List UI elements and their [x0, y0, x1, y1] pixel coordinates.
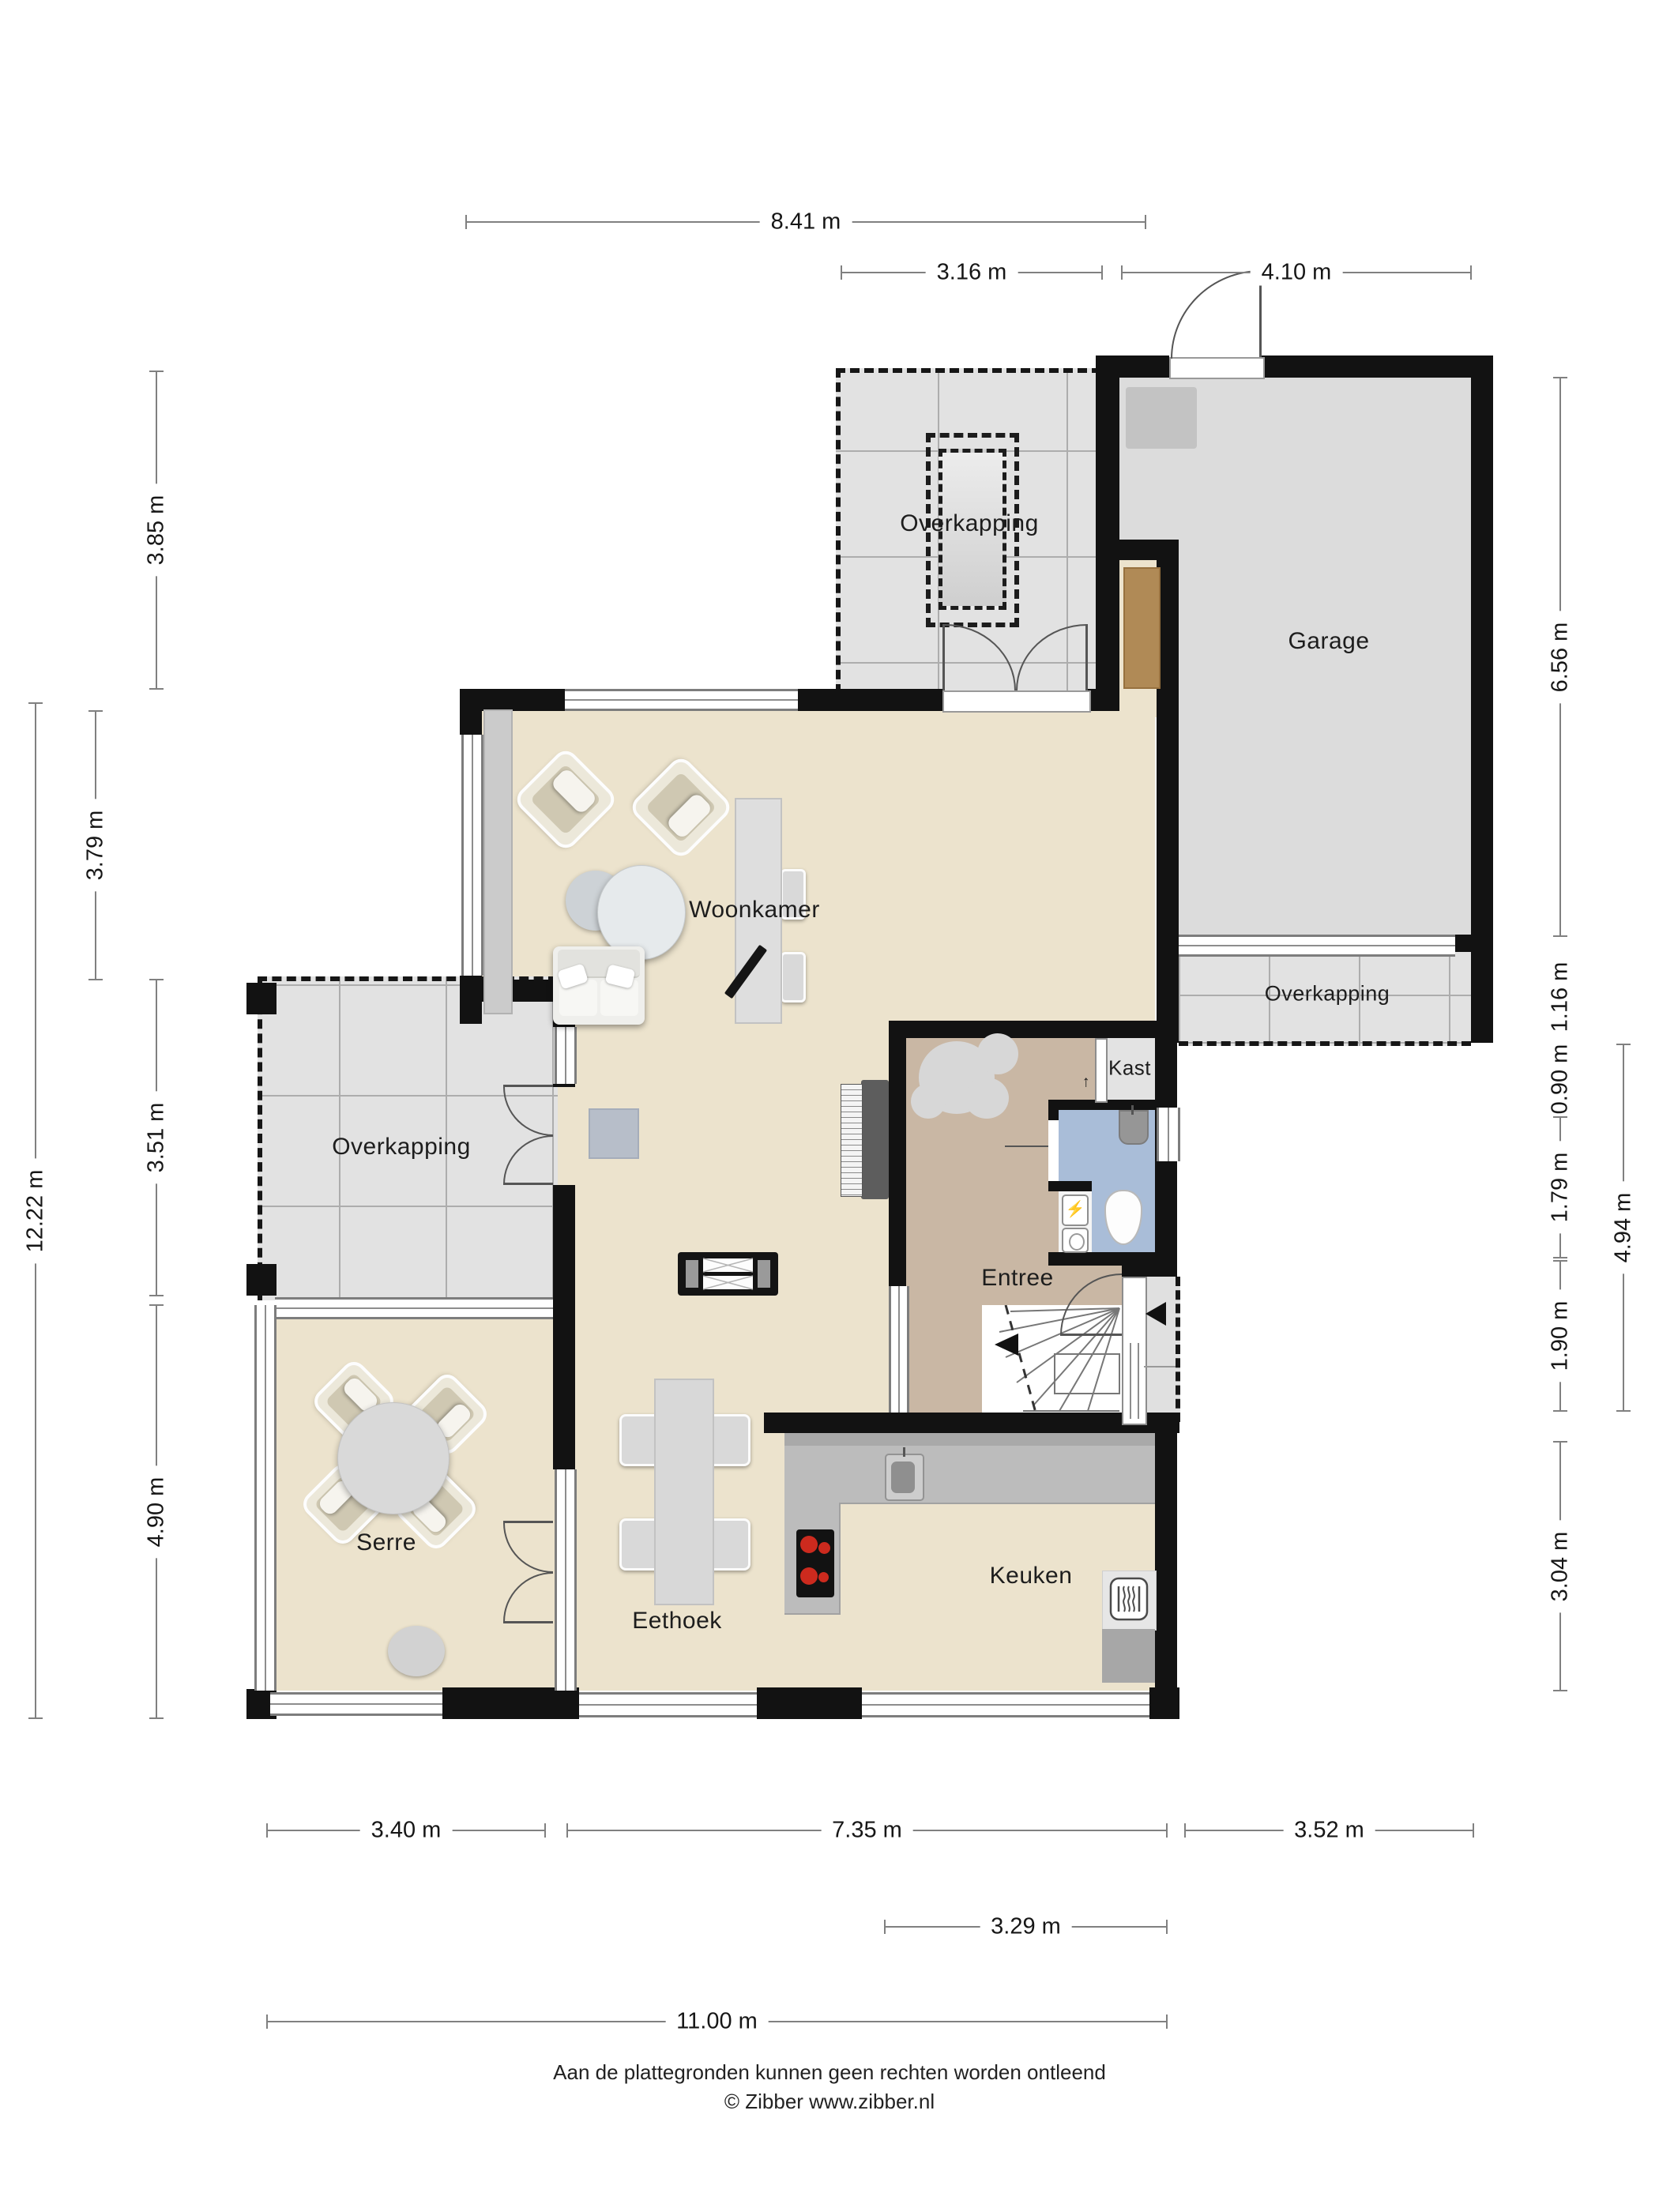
desk-chair-2 — [781, 952, 806, 1003]
oven-icon — [1109, 1577, 1149, 1621]
garage-mat — [1126, 387, 1197, 449]
dining-chair-4 — [711, 1518, 750, 1571]
window-serre-west — [254, 1305, 276, 1691]
cloud-rug — [905, 1027, 1023, 1122]
wall-toilet-west-jog — [1048, 1181, 1092, 1191]
wall-top-east — [1088, 689, 1119, 711]
porch-divider-line — [1144, 1366, 1176, 1367]
kitchen-counter-upper-strip — [784, 1433, 1155, 1446]
post-overkapping-left-nw — [246, 983, 276, 1014]
dim-right-toilet: 1.79 m — [1559, 1117, 1561, 1258]
wall-garage-east — [1471, 355, 1493, 1043]
toilet-sink — [1119, 1110, 1149, 1145]
dim-right-kast: 0.90 m — [1559, 1044, 1561, 1114]
front-door-sidelight — [1130, 1343, 1139, 1419]
entrance-arrow-icon — [1145, 1302, 1166, 1326]
dim-right-keuken: 3.04 m — [1559, 1442, 1561, 1691]
wall-keuken-north — [764, 1413, 1179, 1433]
piano-keys — [841, 1084, 863, 1197]
dim-left-woonkamer: 3.79 m — [95, 711, 96, 980]
wall-keuken-east — [1155, 1422, 1177, 1718]
room-label-garage: Garage — [1288, 628, 1369, 655]
wall-overkapping-left-east-lower — [553, 1185, 575, 1302]
kitchen-sink — [885, 1454, 924, 1501]
window-toilet-east — [1157, 1108, 1180, 1161]
wall-west-upper — [460, 689, 482, 735]
dining-chair-3 — [711, 1414, 750, 1466]
dim-left-overkapping: 3.51 m — [156, 980, 157, 1296]
dim-top-garage: 4.10 m — [1122, 272, 1471, 273]
cooktop — [796, 1529, 834, 1597]
dim-left-overkapping-top: 3.85 m — [156, 371, 157, 689]
room-label-serre: Serre — [356, 1529, 416, 1556]
window-serre-east — [555, 1469, 577, 1691]
dim-bottom-main: 7.35 m — [567, 1830, 1167, 1831]
room-label-keuken: Keuken — [990, 1563, 1073, 1589]
window-serre-top — [275, 1297, 553, 1319]
piano-body — [861, 1080, 889, 1199]
serre-table — [337, 1402, 450, 1514]
meter-box: ⚡ — [1062, 1194, 1089, 1226]
dim-bottom-serre: 3.40 m — [267, 1830, 545, 1831]
garage-floor-lower — [1179, 540, 1471, 936]
room-label-overkapping-top: Overkapping — [900, 510, 1039, 537]
cooktop-burner-4 — [818, 1572, 829, 1582]
room-label-eethoek: Eethoek — [632, 1608, 722, 1635]
wall-garage-bottom-east — [1455, 935, 1471, 952]
fireplace — [678, 1252, 778, 1296]
window-woonkamer-west — [461, 735, 483, 976]
cloud-rug-blob-2 — [977, 1033, 1018, 1074]
garage-door-arc — [1171, 270, 1261, 359]
dim-right-entree-total: 4.94 m — [1623, 1044, 1624, 1411]
room-label-overkapping-left: Overkapping — [332, 1134, 471, 1161]
room-label-kast: Kast — [1108, 1056, 1151, 1081]
footer-disclaimer: Aan de plattegronden kunnen geen rechten… — [0, 2060, 1659, 2085]
dim-bottom-right: 3.52 m — [1185, 1830, 1473, 1831]
entrance-porch — [1144, 1277, 1180, 1422]
kast-door — [1095, 1038, 1108, 1103]
dining-chair-1 — [619, 1414, 659, 1466]
serre-pouf — [388, 1626, 445, 1676]
toilet-door-leaf — [1005, 1145, 1048, 1147]
window-overkapping-left-east — [555, 1027, 577, 1084]
post-overkapping-left-sw — [246, 1264, 276, 1296]
fontein-basin-bowl — [1069, 1233, 1085, 1251]
window-garage-bottom — [1179, 935, 1455, 957]
wall-west-corner — [460, 976, 482, 1024]
window-woonkamer-top — [565, 689, 798, 711]
kast-door-arrow-icon: ↑ — [1082, 1074, 1091, 1092]
wall-overkapping-left-east-mid — [553, 1084, 575, 1087]
dining-chair-2 — [619, 1518, 659, 1571]
wall-garage-top-east — [1262, 355, 1493, 378]
toilet-sink-tap — [1131, 1105, 1134, 1115]
dim-top-total: 8.41 m — [466, 221, 1145, 223]
wall-entree-west — [889, 1021, 906, 1286]
window-entree-west-glass — [889, 1286, 909, 1413]
dining-table — [654, 1379, 714, 1605]
kitchen-counter-top — [784, 1433, 1155, 1504]
dim-left-total: 12.22 m — [35, 703, 36, 1718]
window-serre-bottom — [270, 1692, 442, 1716]
cooktop-burner-3 — [800, 1567, 818, 1585]
wall-east-porch-jog — [1122, 1261, 1177, 1277]
overkapping-top-door-sill — [942, 690, 1091, 713]
coffee-table-large — [597, 865, 686, 960]
dim-bottom-window: 3.29 m — [885, 1926, 1167, 1928]
dim-right-overkapping: 1.16 m — [1559, 952, 1561, 1041]
wall-toilet-west-upper — [1048, 1110, 1059, 1120]
garage-door-sill — [1169, 357, 1265, 379]
window-seat-strip — [483, 709, 513, 1014]
window-eethoek-bottom — [579, 1692, 757, 1717]
fontein-basin — [1062, 1228, 1089, 1253]
sideboard-wood — [1123, 567, 1161, 689]
wall-top-mid — [798, 689, 942, 711]
toilet-door-opening — [1048, 1120, 1059, 1181]
window-keuken-bottom — [862, 1692, 1149, 1717]
room-label-entree: Entree — [981, 1265, 1053, 1292]
kitchen-sink-basin — [891, 1461, 915, 1493]
dim-right-garage: 6.56 m — [1559, 378, 1561, 936]
kitchen-cabinet — [1102, 1629, 1155, 1683]
wall-bottom-mid — [757, 1687, 862, 1719]
cooktop-burner-1 — [800, 1536, 818, 1553]
sofa — [553, 946, 645, 1025]
cloud-rug-blob-4 — [965, 1078, 1009, 1119]
dim-left-serre: 4.90 m — [156, 1305, 157, 1718]
room-label-woonkamer: Woonkamer — [689, 897, 820, 924]
dim-right-hall: 1.90 m — [1559, 1261, 1561, 1411]
cloud-rug-blob-3 — [911, 1084, 946, 1119]
floorplan-canvas: ↑ — [0, 0, 1659, 2212]
kitchen-sink-tap — [903, 1447, 905, 1457]
dim-top-overkapping: 3.16 m — [841, 272, 1102, 273]
wall-bottom-serre-east — [442, 1687, 579, 1719]
dim-bottom-total: 11.00 m — [267, 2021, 1167, 2022]
cooktop-burner-2 — [818, 1542, 830, 1554]
wall-serre-east-upper — [553, 1302, 575, 1469]
room-label-overkapping-right: Overkapping — [1265, 982, 1390, 1006]
wall-garage-west-upper — [1096, 355, 1119, 689]
footer-copyright: © Zibber www.zibber.nl — [0, 2090, 1659, 2114]
side-table-square — [589, 1108, 639, 1159]
